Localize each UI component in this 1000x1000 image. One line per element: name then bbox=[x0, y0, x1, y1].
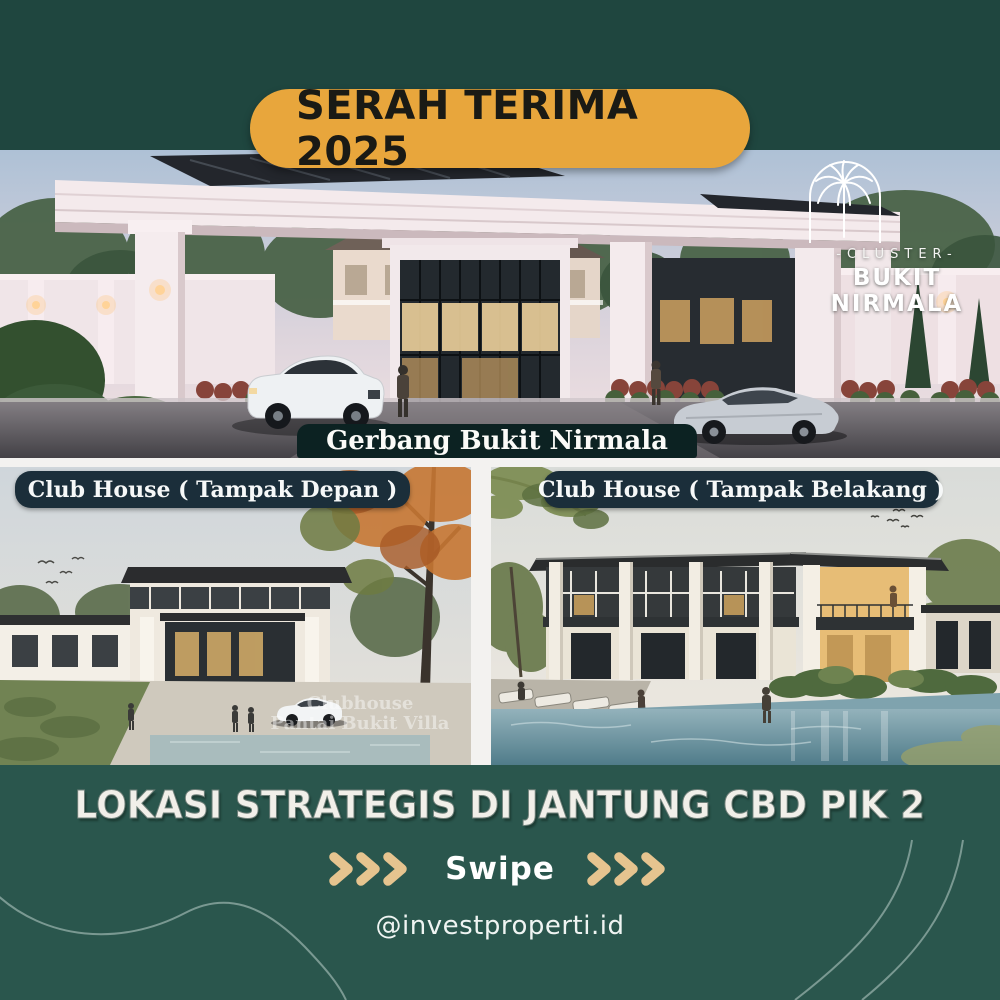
club-back-label-text: Club House ( Tampak Belakang ) bbox=[538, 477, 945, 503]
gate-caption-bar: Gerbang Bukit Nirmala bbox=[297, 424, 697, 458]
watermark-line2: Pantai Bukit Villa bbox=[271, 713, 450, 734]
headline: LOKASI STRATEGIS DI JANTUNG CBD PIK 2 bbox=[0, 783, 1000, 827]
club-back-illustration bbox=[491, 467, 1000, 765]
balcony-person bbox=[890, 586, 898, 608]
headline-text: LOKASI STRATEGIS DI JANTUNG CBD PIK 2 bbox=[75, 783, 926, 827]
watermark-line1: Clubhouse bbox=[307, 693, 414, 714]
club-back-photo: Club House ( Tampak Belakang ) bbox=[491, 467, 1000, 765]
handover-badge: SERAH TERIMA 2025 bbox=[250, 89, 750, 168]
swipe-indicator: Swipe bbox=[0, 846, 1000, 892]
club-front-label-text: Club House ( Tampak Depan ) bbox=[28, 477, 398, 503]
gate-caption-text: Gerbang Bukit Nirmala bbox=[326, 426, 668, 456]
chevrons-left-icon bbox=[327, 851, 415, 887]
chevrons-right-icon bbox=[585, 851, 673, 887]
club-front-illustration: Clubhouse Pantai Bukit Villa bbox=[0, 467, 471, 765]
cluster-name: BUKIT NIRMALA bbox=[802, 265, 992, 317]
cluster-tagline: -CLUSTER- bbox=[802, 247, 992, 262]
swipe-label: Swipe bbox=[445, 851, 555, 887]
gate-photo: -CLUSTER- BUKIT NIRMALA Gerbang Bukit Ni… bbox=[0, 150, 1000, 458]
handover-badge-label: SERAH TERIMA 2025 bbox=[296, 83, 704, 175]
club-back-label-bar: Club House ( Tampak Belakang ) bbox=[543, 471, 940, 508]
club-front-label-bar: Club House ( Tampak Depan ) bbox=[15, 471, 410, 508]
palm-arch-icon bbox=[802, 155, 888, 243]
cluster-logo: -CLUSTER- BUKIT NIRMALA bbox=[802, 155, 992, 317]
club-front-photo: Clubhouse Pantai Bukit Villa Club House … bbox=[0, 467, 471, 765]
account-handle: @investproperti.id bbox=[0, 911, 1000, 941]
